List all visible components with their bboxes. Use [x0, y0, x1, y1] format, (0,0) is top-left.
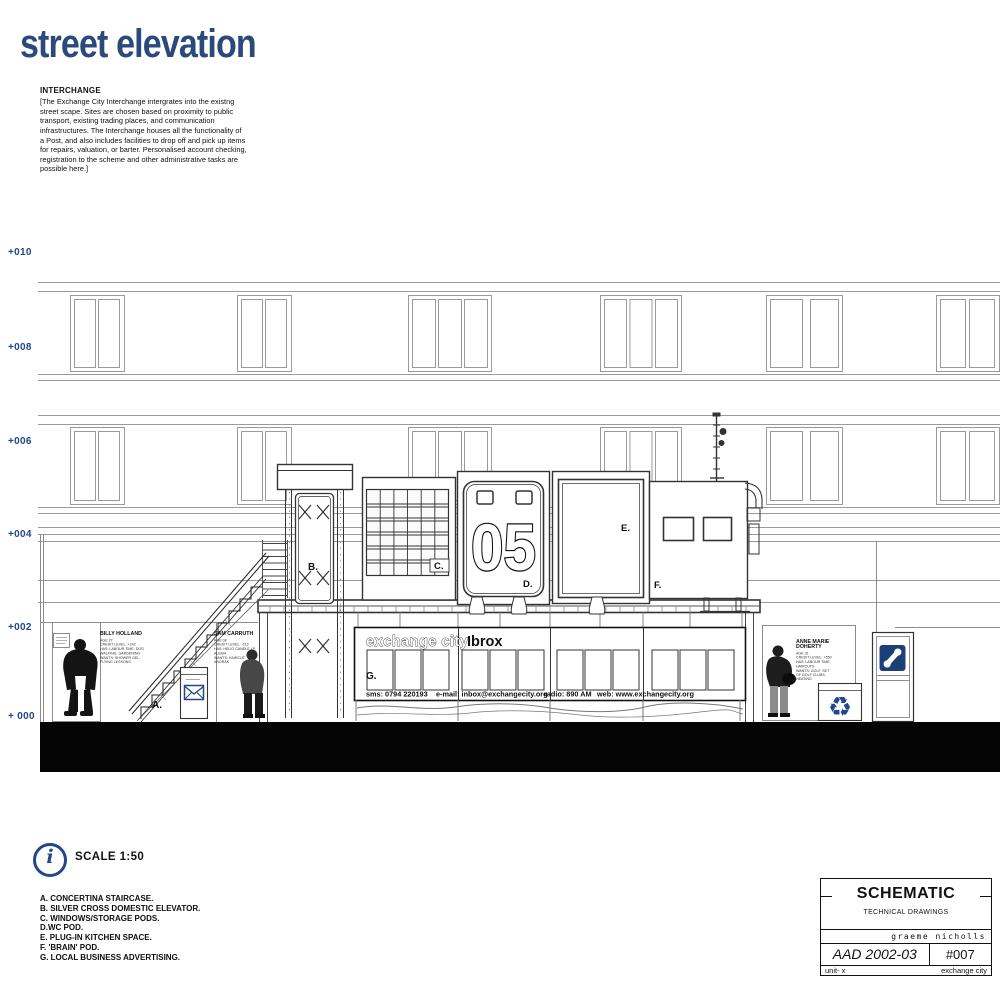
pod-storage: [363, 478, 456, 601]
pod-brain: [650, 482, 763, 612]
legend-item: G. LOCAL BUSINESS ADVERTISING.: [40, 953, 200, 963]
access-ladder: [263, 540, 288, 598]
legend-item: C. WINDOWS/STORAGE PODS.: [40, 914, 200, 924]
location-sign: Ibrox: [467, 634, 502, 650]
brand-sign: exchange city: [366, 634, 468, 650]
elevator-tower: [263, 465, 353, 719]
title-block: SCHEMATIC TECHNICAL DRAWINGS graeme nich…: [820, 878, 992, 976]
phone-booth: [873, 633, 914, 722]
legend-item: D.WC POD.: [40, 923, 200, 933]
pod-number: 05: [471, 510, 536, 584]
callout-a: A.: [152, 700, 162, 711]
info-icon: i: [33, 843, 67, 877]
pods: [363, 413, 763, 614]
tick-mark: [980, 896, 991, 897]
contact-email: e-mail: inbox@exchangecity.org: [436, 690, 548, 699]
callout-e: E.: [621, 523, 630, 534]
skirt-lines: [356, 700, 743, 721]
phone-icon: [880, 645, 906, 671]
schematic-sheet: ♻: [0, 0, 1000, 1000]
interchange-note: INTERCHANGE [The Exchange City Interchan…: [40, 86, 276, 174]
callout-b: B.: [308, 562, 318, 573]
person-anne-stats: AGE 31 CREDIT LEVEL: +550 HAS: LABOUR TI…: [796, 652, 862, 682]
recycling-bin: ♻: [819, 684, 862, 724]
scale-label: SCALE 1:50: [75, 851, 144, 863]
legend-item: F. 'BRAIN' POD.: [40, 943, 200, 953]
recycle-icon: ♻: [828, 692, 852, 723]
postbox: [181, 668, 208, 719]
legend-item: B. SILVER CROSS DOMESTIC ELEVATOR.: [40, 904, 200, 914]
callout-g: G.: [366, 671, 377, 682]
ground-band: [40, 722, 1000, 772]
callout-c: C.: [434, 561, 444, 572]
person-sam-stats: AGE 08 CREDIT LEVEL: -212 HAS: HELIO CAN…: [214, 639, 280, 665]
title-block-title: SCHEMATIC: [821, 879, 991, 903]
person-billy-stats: AGE 27 CREDIT LEVEL: +242 HAS: LABOUR TI…: [100, 639, 166, 665]
lower-structure: [260, 612, 754, 722]
title-block-course: AAD 2002-03: [821, 944, 929, 965]
contact-sms: sms: 0794 220193: [366, 690, 428, 699]
level-marker-004: +004: [8, 529, 32, 540]
title-block-project: exchange city: [941, 966, 987, 976]
person-anne-name: ANNE MARIE DOHERTY: [796, 639, 869, 650]
pod-kitchen: [553, 472, 650, 615]
antenna-mast: [710, 413, 726, 482]
level-marker-006: +006: [8, 436, 32, 447]
level-marker-000: + 000: [8, 711, 35, 722]
person-billy-name: BILLY HOLLAND: [100, 631, 173, 637]
legend: A. CONCERTINA STAIRCASE. B. SILVER CROSS…: [40, 894, 200, 963]
callout-f: F.: [654, 580, 661, 591]
title-block-subtitle: TECHNICAL DRAWINGS: [821, 909, 991, 916]
level-marker-008: +008: [8, 342, 32, 353]
tick-mark: [821, 896, 832, 897]
contact-radio: radio: 890 AM: [544, 690, 592, 699]
level-marker-010: +010: [8, 247, 32, 258]
title-block-author: graeme nicholls: [821, 929, 991, 943]
title-block-header: SCHEMATIC TECHNICAL DRAWINGS: [821, 879, 991, 929]
interchange-body: [The Exchange City Interchange intergrat…: [40, 97, 276, 174]
interchange-heading: INTERCHANGE: [40, 86, 276, 95]
level-marker-002: +002: [8, 622, 32, 633]
page-title: street elevation: [20, 22, 256, 67]
envelope-icon: [185, 686, 204, 700]
contact-web: web: www.exchangecity.org: [596, 690, 694, 699]
person-sam-name: SAM CARRUTH: [214, 631, 287, 637]
legend-item: A. CONCERTINA STAIRCASE.: [40, 894, 200, 904]
title-block-sheet-number: #007: [929, 944, 991, 965]
legend-item: E. PLUG-IN KITCHEN SPACE.: [40, 933, 200, 943]
person-billy-figure: [63, 639, 97, 716]
title-block-unit: unit- x: [825, 966, 845, 976]
